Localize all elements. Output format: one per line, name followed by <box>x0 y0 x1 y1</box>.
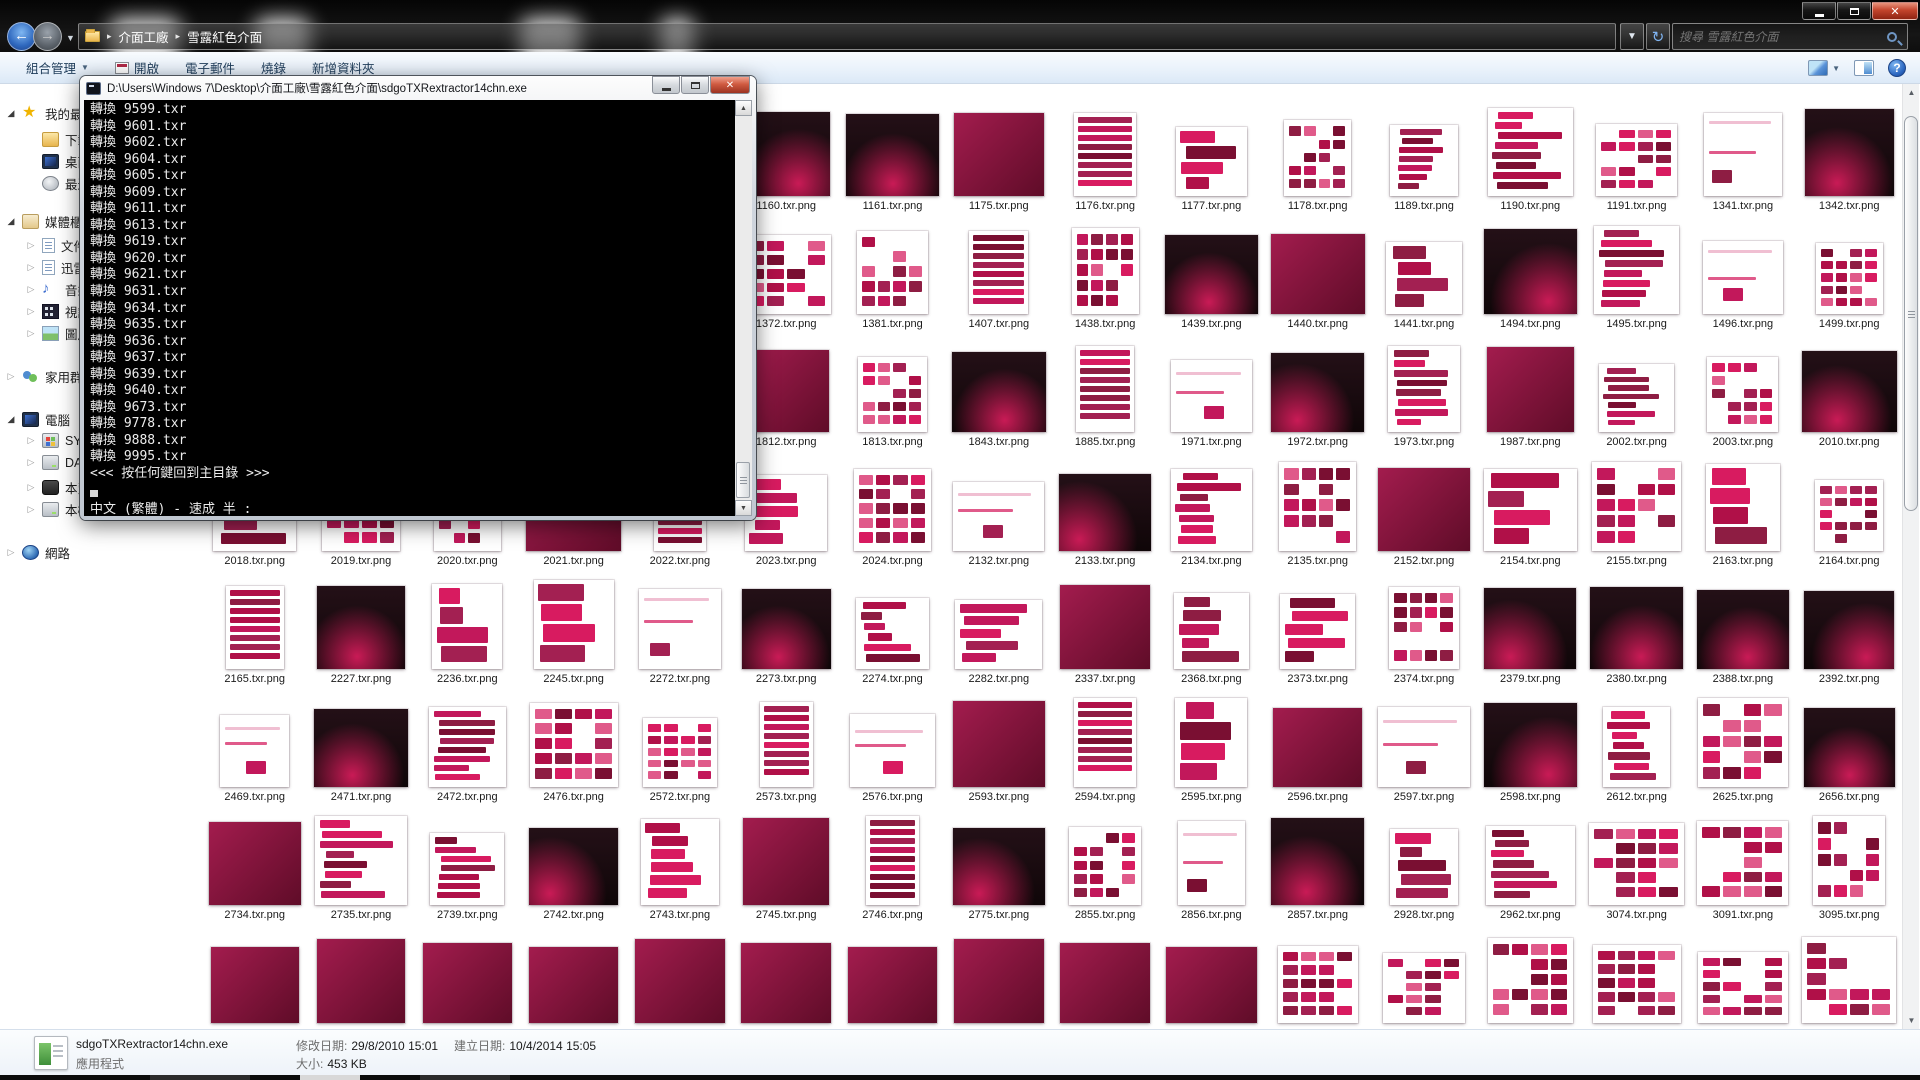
thumbnail-image <box>840 340 946 432</box>
grp-icon <box>22 369 39 384</box>
file-name: 2472.txr.png <box>406 791 528 807</box>
file-thumbnail[interactable] <box>840 931 946 1029</box>
file-thumbnail[interactable]: 2010.txr.png <box>1796 340 1902 452</box>
file-thumbnail[interactable]: 2236.txr.png <box>414 577 520 689</box>
expanded-arrow-icon[interactable]: ◢ <box>6 108 16 119</box>
file-name: 2337.txr.png <box>1044 673 1166 689</box>
thumbnail-image <box>1584 577 1690 669</box>
file-name: 2374.txr.png <box>1363 673 1485 689</box>
thumbnail-image <box>1796 931 1902 1023</box>
file-thumbnail[interactable]: 2024.txr.png <box>840 459 946 571</box>
mon-icon <box>22 412 39 427</box>
file-name: 2855.txr.png <box>1044 909 1166 925</box>
file-thumbnail[interactable]: 1499.txr.png <box>1796 222 1902 334</box>
page-icon <box>42 260 55 275</box>
file-name: 1441.txr.png <box>1363 318 1485 334</box>
thumbnail-image <box>202 577 308 669</box>
file-thumbnail[interactable]: 2857.txr.png <box>1265 813 1371 925</box>
file-thumbnail[interactable]: 2373.txr.png <box>1265 577 1371 689</box>
thumbnail-image <box>840 695 946 787</box>
file-name: 2164.txr.png <box>1788 555 1902 571</box>
file-thumbnail[interactable]: 2227.txr.png <box>308 577 414 689</box>
file-name: 1495.txr.png <box>1576 318 1698 334</box>
thumbnail-image <box>1690 813 1796 905</box>
file-thumbnail[interactable]: 3091.txr.png <box>1690 813 1796 925</box>
file-thumbnail[interactable]: 2739.txr.png <box>414 813 520 925</box>
collapsed-arrow-icon[interactable]: ▷ <box>26 240 36 251</box>
file-name: 1438.txr.png <box>1044 318 1166 334</box>
file-thumbnail[interactable]: 2155.txr.png <box>1584 459 1690 571</box>
sidebar-item-label: 媒體櫃 <box>45 212 83 231</box>
file-thumbnail[interactable]: 1381.txr.png <box>840 222 946 334</box>
console-scrollbar[interactable]: ▲ ▼ <box>735 100 752 516</box>
file-name: 1496.txr.png <box>1682 318 1804 334</box>
file-thumbnail[interactable]: 2368.txr.png <box>1158 577 1264 689</box>
created-date-field: 建立日期:10/4/2014 15:05 <box>454 1037 596 1054</box>
file-thumbnail[interactable]: 2625.txr.png <box>1690 695 1796 807</box>
file-thumbnail[interactable]: 2656.txr.png <box>1796 695 1902 807</box>
file-thumbnail[interactable] <box>1371 931 1477 1029</box>
file-thumbnail[interactable]: 2572.txr.png <box>627 695 733 807</box>
file-thumbnail[interactable]: 1972.txr.png <box>1265 340 1371 452</box>
taskbar-edge <box>0 1075 1920 1080</box>
file-thumbnail[interactable] <box>1584 931 1690 1029</box>
file-name: 3091.txr.png <box>1682 909 1804 925</box>
console-restore-button[interactable] <box>681 76 709 94</box>
file-thumbnail[interactable]: 2476.txr.png <box>521 695 627 807</box>
thumbnail-image <box>1052 931 1158 1023</box>
thumbnail-image <box>946 577 1052 669</box>
file-thumbnail[interactable]: 2745.txr.png <box>733 813 839 925</box>
preview-pane-button[interactable] <box>1854 60 1874 76</box>
console-title: D:\Users\Windows 7\Desktop\介面工廠\雪露紅色介面\s… <box>107 80 646 96</box>
sidebar-item[interactable]: ▷網路 <box>6 543 70 562</box>
thumbnail-image <box>1690 104 1796 196</box>
file-thumbnail[interactable]: 2735.txr.png <box>308 813 414 925</box>
thumbnail-image <box>1265 813 1371 905</box>
file-name: 1439.txr.png <box>1150 318 1272 334</box>
toolbar-command[interactable]: 新增資料夾 <box>312 58 375 77</box>
thumbnail-image <box>1477 459 1583 551</box>
file-thumbnail[interactable]: 2002.txr.png <box>1584 340 1690 452</box>
console-minimize-button[interactable] <box>652 76 680 94</box>
history-dropdown-icon[interactable]: ▼ <box>66 33 75 43</box>
file-thumbnail[interactable]: 1190.txr.png <box>1477 104 1583 216</box>
file-thumbnail[interactable]: 1439.txr.png <box>1158 222 1264 334</box>
file-thumbnail[interactable]: 1987.txr.png <box>1477 340 1583 452</box>
file-thumbnail[interactable]: 2164.txr.png <box>1796 459 1902 571</box>
file-name: 2019.txr.png <box>300 555 422 571</box>
file-thumbnail[interactable]: 1191.txr.png <box>1584 104 1690 216</box>
file-name: 1843.txr.png <box>938 436 1060 452</box>
file-name: 3074.txr.png <box>1576 909 1698 925</box>
thumbnail-image <box>1265 931 1371 1023</box>
thumbnail-image <box>1796 577 1902 669</box>
thumbnail-image <box>1371 931 1477 1023</box>
thumbnail-image <box>946 931 1052 1023</box>
file-name: 2625.txr.png <box>1682 791 1804 807</box>
file-name: 2734.txr.png <box>196 909 316 925</box>
file-name: 1971.txr.png <box>1150 436 1272 452</box>
file-thumbnail[interactable]: 2392.txr.png <box>1796 577 1902 689</box>
thumbnail-image <box>840 222 946 314</box>
organize-button[interactable]: 組合管理▼ <box>26 58 89 77</box>
file-name: 2471.txr.png <box>300 791 422 807</box>
selected-file-type: 應用程式 <box>76 1055 124 1072</box>
minimize-button[interactable] <box>1802 2 1836 20</box>
file-name: 2155.txr.png <box>1576 555 1698 571</box>
thumbnail-image <box>946 340 1052 432</box>
file-thumbnail[interactable]: 2743.txr.png <box>627 813 733 925</box>
file-thumbnail[interactable]: 2472.txr.png <box>414 695 520 807</box>
thumbnail-image <box>1690 695 1796 787</box>
file-thumbnail[interactable]: 2388.txr.png <box>1690 577 1796 689</box>
file-thumbnail[interactable]: 2245.txr.png <box>521 577 627 689</box>
thumbnail-image <box>1796 104 1902 196</box>
thumbnail-image <box>840 459 946 551</box>
thumbnail-image <box>1371 104 1477 196</box>
thumbnail-image <box>1796 340 1902 432</box>
forward-button[interactable]: → <box>33 22 62 51</box>
sidebar-item[interactable]: ▷迅雷 <box>26 258 86 277</box>
search-icon[interactable] <box>1887 32 1897 42</box>
file-thumbnail[interactable]: 2962.txr.png <box>1477 813 1583 925</box>
collapsed-arrow-icon[interactable]: ▷ <box>6 547 16 558</box>
file-thumbnail[interactable] <box>521 931 627 1029</box>
file-thumbnail[interactable]: 1175.txr.png <box>946 104 1052 216</box>
file-thumbnail[interactable] <box>1796 931 1902 1029</box>
file-thumbnail[interactable]: 2734.txr.png <box>202 813 308 925</box>
thumbnail-image <box>414 577 520 669</box>
file-name: 2021.txr.png <box>513 555 635 571</box>
thumbnail-image <box>1158 695 1264 787</box>
thumbnail-image <box>521 577 627 669</box>
file-thumbnail[interactable]: 1843.txr.png <box>946 340 1052 452</box>
file-thumbnail[interactable]: 2132.txr.png <box>946 459 1052 571</box>
file-thumbnail[interactable]: 2133.txr.png <box>1052 459 1158 571</box>
file-name: 2272.txr.png <box>619 673 741 689</box>
thumbnail-image <box>1796 222 1902 314</box>
file-thumbnail[interactable]: 2775.txr.png <box>946 813 1052 925</box>
refresh-button[interactable]: ↻ <box>1646 23 1670 50</box>
file-thumbnail[interactable]: 2273.txr.png <box>733 577 839 689</box>
file-thumbnail[interactable] <box>733 931 839 1029</box>
thumbnail-image <box>1265 222 1371 314</box>
file-thumbnail[interactable]: 2612.txr.png <box>1584 695 1690 807</box>
file-name: 1176.txr.png <box>1044 200 1166 216</box>
file-thumbnail[interactable]: 1813.txr.png <box>840 340 946 452</box>
breadcrumb-item[interactable]: 介面工廠 <box>119 27 169 46</box>
file-name: 1407.txr.png <box>938 318 1060 334</box>
file-name: 2018.txr.png <box>196 555 316 571</box>
thumbnail-image <box>1052 695 1158 787</box>
file-thumbnail[interactable]: 1178.txr.png <box>1265 104 1371 216</box>
breadcrumb-item[interactable]: 雪露紅色介面 <box>187 27 262 46</box>
file-thumbnail[interactable] <box>627 931 733 1029</box>
file-thumbnail[interactable]: 1407.txr.png <box>946 222 1052 334</box>
file-thumbnail[interactable]: 3074.txr.png <box>1584 813 1690 925</box>
file-name: 2368.txr.png <box>1150 673 1272 689</box>
file-thumbnail[interactable]: 2134.txr.png <box>1158 459 1264 571</box>
collapsed-arrow-icon[interactable]: ▷ <box>26 504 36 515</box>
file-thumbnail[interactable]: 2594.txr.png <box>1052 695 1158 807</box>
file-name: 2274.txr.png <box>832 673 954 689</box>
file-thumbnail[interactable]: 2274.txr.png <box>840 577 946 689</box>
thumbnail-image <box>1796 813 1902 905</box>
file-name: 2576.txr.png <box>832 791 954 807</box>
file-name: 1189.txr.png <box>1363 200 1485 216</box>
file-thumbnail[interactable]: 2597.txr.png <box>1371 695 1477 807</box>
file-thumbnail[interactable]: 1176.txr.png <box>1052 104 1158 216</box>
console-icon <box>86 82 101 95</box>
file-thumbnail[interactable]: 2379.txr.png <box>1477 577 1583 689</box>
file-thumbnail[interactable] <box>946 931 1052 1029</box>
console-scroll-down-arrow[interactable]: ▼ <box>735 500 752 516</box>
star-icon: ★ <box>22 106 39 121</box>
thumbnail-image <box>946 459 1052 551</box>
file-name: 2373.txr.png <box>1257 673 1379 689</box>
file-name: 2745.txr.png <box>725 909 847 925</box>
file-thumbnail[interactable]: 1973.txr.png <box>1371 340 1477 452</box>
file-thumbnail[interactable]: 1177.txr.png <box>1158 104 1264 216</box>
sidebar-item[interactable]: ◢媒體櫃 <box>6 212 83 231</box>
collapsed-arrow-icon[interactable]: ▷ <box>26 435 36 446</box>
folder-icon <box>42 132 59 147</box>
expanded-arrow-icon[interactable]: ◢ <box>6 414 16 425</box>
file-thumbnail[interactable]: 1161.txr.png <box>840 104 946 216</box>
thumbnail-image <box>1158 340 1264 432</box>
file-thumbnail[interactable] <box>1052 931 1158 1029</box>
file-name: 2612.txr.png <box>1576 791 1698 807</box>
file-name: 2003.txr.png <box>1682 436 1804 452</box>
file-name: 2002.txr.png <box>1576 436 1698 452</box>
file-thumbnail[interactable] <box>414 931 520 1029</box>
file-thumbnail[interactable]: 1441.txr.png <box>1371 222 1477 334</box>
file-thumbnail[interactable]: 1438.txr.png <box>1052 222 1158 334</box>
expanded-arrow-icon[interactable]: ◢ <box>6 216 16 227</box>
file-thumbnail[interactable]: 1341.txr.png <box>1690 104 1796 216</box>
views-icon <box>1808 60 1828 76</box>
views-button[interactable]: ▼ <box>1808 60 1840 76</box>
file-thumbnail[interactable]: 2746.txr.png <box>840 813 946 925</box>
disk-icon <box>42 455 59 470</box>
console-window: D:\Users\Windows 7\Desktop\介面工廠\雪露紅色介面\s… <box>80 76 756 520</box>
file-thumbnail[interactable]: 2856.txr.png <box>1158 813 1264 925</box>
collapsed-arrow-icon[interactable]: ▷ <box>26 284 36 295</box>
file-thumbnail[interactable]: 2595.txr.png <box>1158 695 1264 807</box>
console-scrollbar-thumb[interactable] <box>736 462 750 498</box>
toolbar-command[interactable]: 開啟 <box>115 58 159 77</box>
file-thumbnail[interactable]: 2282.txr.png <box>946 577 1052 689</box>
file-thumbnail[interactable]: 2928.txr.png <box>1371 813 1477 925</box>
search-input[interactable] <box>1673 30 1887 44</box>
file-thumbnail[interactable]: 2380.txr.png <box>1584 577 1690 689</box>
file-thumbnail[interactable] <box>308 931 414 1029</box>
file-name: 2743.txr.png <box>619 909 741 925</box>
shelf-icon <box>22 214 39 229</box>
file-thumbnail[interactable]: 1342.txr.png <box>1796 104 1902 216</box>
help-button[interactable]: ? <box>1888 59 1906 77</box>
file-thumbnail[interactable]: 1885.txr.png <box>1052 340 1158 452</box>
thumbnail-image <box>946 222 1052 314</box>
file-thumbnail[interactable]: 2593.txr.png <box>946 695 1052 807</box>
scroll-up-arrow[interactable]: ▲ <box>1903 84 1920 101</box>
scrollbar-thumb[interactable] <box>1904 116 1918 511</box>
thumbnail-image <box>840 813 946 905</box>
thumbnail-image <box>308 813 414 905</box>
file-name: 1161.txr.png <box>832 200 954 216</box>
file-name: 2598.txr.png <box>1469 791 1591 807</box>
thumbnail-image <box>1265 340 1371 432</box>
console-title-bar[interactable]: D:\Users\Windows 7\Desktop\介面工廠\雪露紅色介面\s… <box>86 76 750 100</box>
file-name: 2742.txr.png <box>513 909 635 925</box>
thumbnail-image <box>627 695 733 787</box>
file-name: 2020.txr.png <box>406 555 528 571</box>
file-thumbnail[interactable]: 2003.txr.png <box>1690 340 1796 452</box>
thumbnail-image <box>1584 222 1690 314</box>
file-name: 2857.txr.png <box>1257 909 1379 925</box>
thumbnail-image <box>521 695 627 787</box>
file-thumbnail[interactable]: 2374.txr.png <box>1371 577 1477 689</box>
thumbnail-image <box>1052 577 1158 669</box>
collapsed-arrow-icon[interactable]: ▷ <box>6 371 16 382</box>
close-button[interactable]: ✕ <box>1872 2 1918 20</box>
thumbnail-image <box>1052 813 1158 905</box>
thumbnail-image <box>1584 104 1690 196</box>
sidebar-item[interactable]: ▷文件 <box>26 236 86 255</box>
thumbnail-image <box>733 813 839 905</box>
file-thumbnail[interactable]: 2469.txr.png <box>202 695 308 807</box>
scroll-down-arrow[interactable]: ▼ <box>1903 1012 1920 1029</box>
file-thumbnail[interactable] <box>1477 931 1583 1029</box>
file-thumbnail[interactable]: 2596.txr.png <box>1265 695 1371 807</box>
file-name: 3095.txr.png <box>1788 909 1902 925</box>
file-thumbnail[interactable]: 1440.txr.png <box>1265 222 1371 334</box>
thumbnail-image <box>840 931 946 1023</box>
thumbnail-image <box>414 931 520 1023</box>
file-thumbnail[interactable]: 3095.txr.png <box>1796 813 1902 925</box>
folder-icon <box>85 31 100 42</box>
file-thumbnail[interactable]: 1971.txr.png <box>1158 340 1264 452</box>
file-thumbnail[interactable]: 1495.txr.png <box>1584 222 1690 334</box>
file-name: 2163.txr.png <box>1682 555 1804 571</box>
thumbnail-image <box>1371 340 1477 432</box>
thumbnail-image <box>1690 931 1796 1023</box>
thumbnail-image <box>1584 340 1690 432</box>
file-thumbnail[interactable]: 2742.txr.png <box>521 813 627 925</box>
file-thumbnail[interactable]: 1494.txr.png <box>1477 222 1583 334</box>
thumbnail-image <box>1690 340 1796 432</box>
pic-icon <box>42 326 59 341</box>
toolbar-command[interactable]: 電子郵件 <box>185 58 235 77</box>
selected-file-name: sdgoTXRextractor14chn.exe <box>76 1037 228 1051</box>
file-name: 2273.txr.png <box>725 673 847 689</box>
file-thumbnail[interactable]: 1189.txr.png <box>1371 104 1477 216</box>
file-name: 2392.txr.png <box>1788 673 1902 689</box>
thumbnail-image <box>1052 222 1158 314</box>
sidebar-item[interactable]: ◢電腦 <box>6 410 70 429</box>
file-name: 2856.txr.png <box>1150 909 1272 925</box>
file-name: 2739.txr.png <box>406 909 528 925</box>
thumbnail-image <box>946 813 1052 905</box>
file-name: 1499.txr.png <box>1788 318 1902 334</box>
back-button[interactable]: ← <box>7 22 36 51</box>
thumbnail-image <box>1690 577 1796 669</box>
thumbnail-image <box>1371 222 1477 314</box>
file-thumbnail[interactable] <box>1158 931 1264 1029</box>
file-thumbnail[interactable]: 2855.txr.png <box>1052 813 1158 925</box>
thumbnail-image <box>202 813 308 905</box>
exe-file-icon <box>34 1036 68 1070</box>
thumbnail-image <box>1158 931 1264 1023</box>
thumbnail-image <box>1052 104 1158 196</box>
thumbnail-image <box>1265 459 1371 551</box>
file-thumbnail[interactable]: 2152.txr.png <box>1371 459 1477 571</box>
file-name: 2572.txr.png <box>619 791 741 807</box>
file-thumbnail[interactable]: 2337.txr.png <box>1052 577 1158 689</box>
file-thumbnail[interactable]: 2272.txr.png <box>627 577 733 689</box>
collapsed-arrow-icon[interactable]: ▷ <box>26 306 36 317</box>
file-thumbnail[interactable]: 2154.txr.png <box>1477 459 1583 571</box>
file-thumbnail[interactable] <box>202 931 308 1029</box>
file-name: 2024.txr.png <box>832 555 954 571</box>
collapsed-arrow-icon[interactable]: ▷ <box>26 328 36 339</box>
console-close-button[interactable]: ✕ <box>710 76 750 94</box>
file-name: 2593.txr.png <box>938 791 1060 807</box>
thumbnail-image <box>1584 813 1690 905</box>
details-pane: sdgoTXRextractor14chn.exe 應用程式 修改日期:29/8… <box>0 1029 1920 1075</box>
file-name: 1191.txr.png <box>1576 200 1698 216</box>
console-output[interactable]: 轉換 9599.txr轉換 9601.txr轉換 9602.txr轉換 9604… <box>84 100 752 516</box>
thumbnail-image <box>1584 931 1690 1023</box>
thumbnail-image <box>1584 695 1690 787</box>
file-thumbnail[interactable]: 2598.txr.png <box>1477 695 1583 807</box>
file-name: 2594.txr.png <box>1044 791 1166 807</box>
file-name: 1813.txr.png <box>832 436 954 452</box>
maximize-button[interactable] <box>1837 2 1871 20</box>
file-thumbnail[interactable]: 2576.txr.png <box>840 695 946 807</box>
file-name: 2476.txr.png <box>513 791 635 807</box>
toolbar-command[interactable]: 燒錄 <box>261 58 286 77</box>
collapsed-arrow-icon[interactable]: ▷ <box>26 262 36 273</box>
thumbnail-image <box>1796 695 1902 787</box>
console-text: 轉換 9599.txr轉換 9601.txr轉換 9602.txr轉換 9604… <box>90 102 728 516</box>
file-thumbnail[interactable]: 1496.txr.png <box>1690 222 1796 334</box>
thumbnail-image <box>1158 577 1264 669</box>
file-name: 2135.txr.png <box>1257 555 1379 571</box>
file-thumbnail[interactable]: 2471.txr.png <box>308 695 414 807</box>
sidebar-item-label: 電腦 <box>45 410 70 429</box>
collapsed-arrow-icon[interactable]: ▷ <box>26 457 36 468</box>
thumbnail-image <box>202 695 308 787</box>
address-bar[interactable]: ▸介面工廠▸雪露紅色介面 <box>78 23 1616 50</box>
file-thumbnail[interactable] <box>1265 931 1371 1029</box>
file-name: 2469.txr.png <box>196 791 316 807</box>
file-thumbnail[interactable]: 2163.txr.png <box>1690 459 1796 571</box>
console-scroll-up-arrow[interactable]: ▲ <box>735 100 752 116</box>
file-thumbnail[interactable] <box>1690 931 1796 1029</box>
collapsed-arrow-icon[interactable]: ▷ <box>26 482 36 493</box>
thumbnail-image <box>627 577 733 669</box>
file-thumbnail[interactable]: 2165.txr.png <box>202 577 308 689</box>
address-dropdown-button[interactable]: ▼ <box>1620 23 1644 50</box>
search-box[interactable] <box>1672 23 1908 50</box>
thumbnail-image <box>1477 340 1583 432</box>
file-thumbnail[interactable]: 2135.txr.png <box>1265 459 1371 571</box>
file-name: 1440.txr.png <box>1257 318 1379 334</box>
file-thumbnail[interactable]: 2573.txr.png <box>733 695 839 807</box>
vertical-scrollbar[interactable]: ▲ ▼ <box>1902 84 1919 1029</box>
